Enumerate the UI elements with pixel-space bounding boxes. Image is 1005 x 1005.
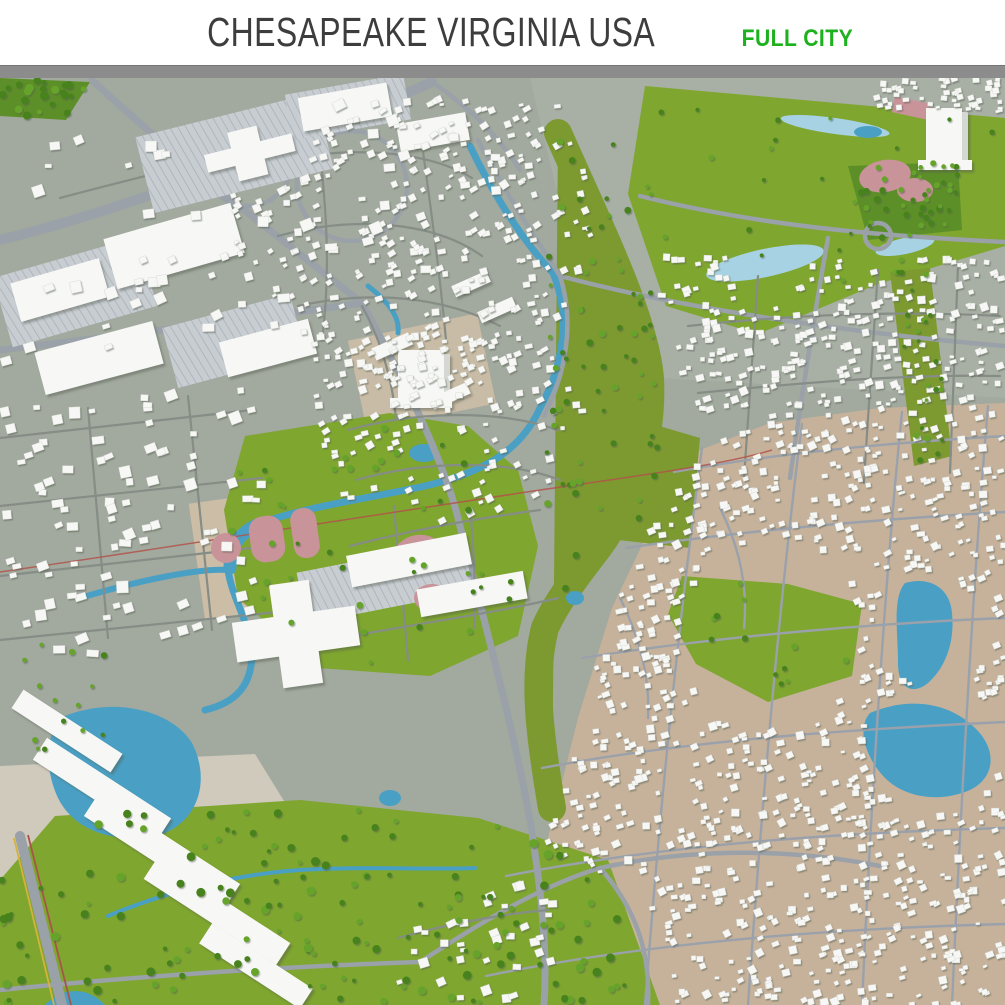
header: CHESAPEAKE VIRGINIA USA FULL CITY	[0, 0, 1005, 65]
page-title: CHESAPEAKE VIRGINIA USA	[207, 9, 655, 56]
full-city-badge: FULL CITY	[742, 25, 854, 53]
product-page: CHESAPEAKE VIRGINIA USA FULL CITY	[0, 0, 1005, 1005]
city-3d-map	[0, 78, 1005, 1005]
tower-building	[918, 108, 972, 170]
header-divider	[0, 65, 1005, 78]
city-render	[0, 78, 1005, 1005]
header-row: CHESAPEAKE VIRGINIA USA FULL CITY	[144, 9, 861, 56]
